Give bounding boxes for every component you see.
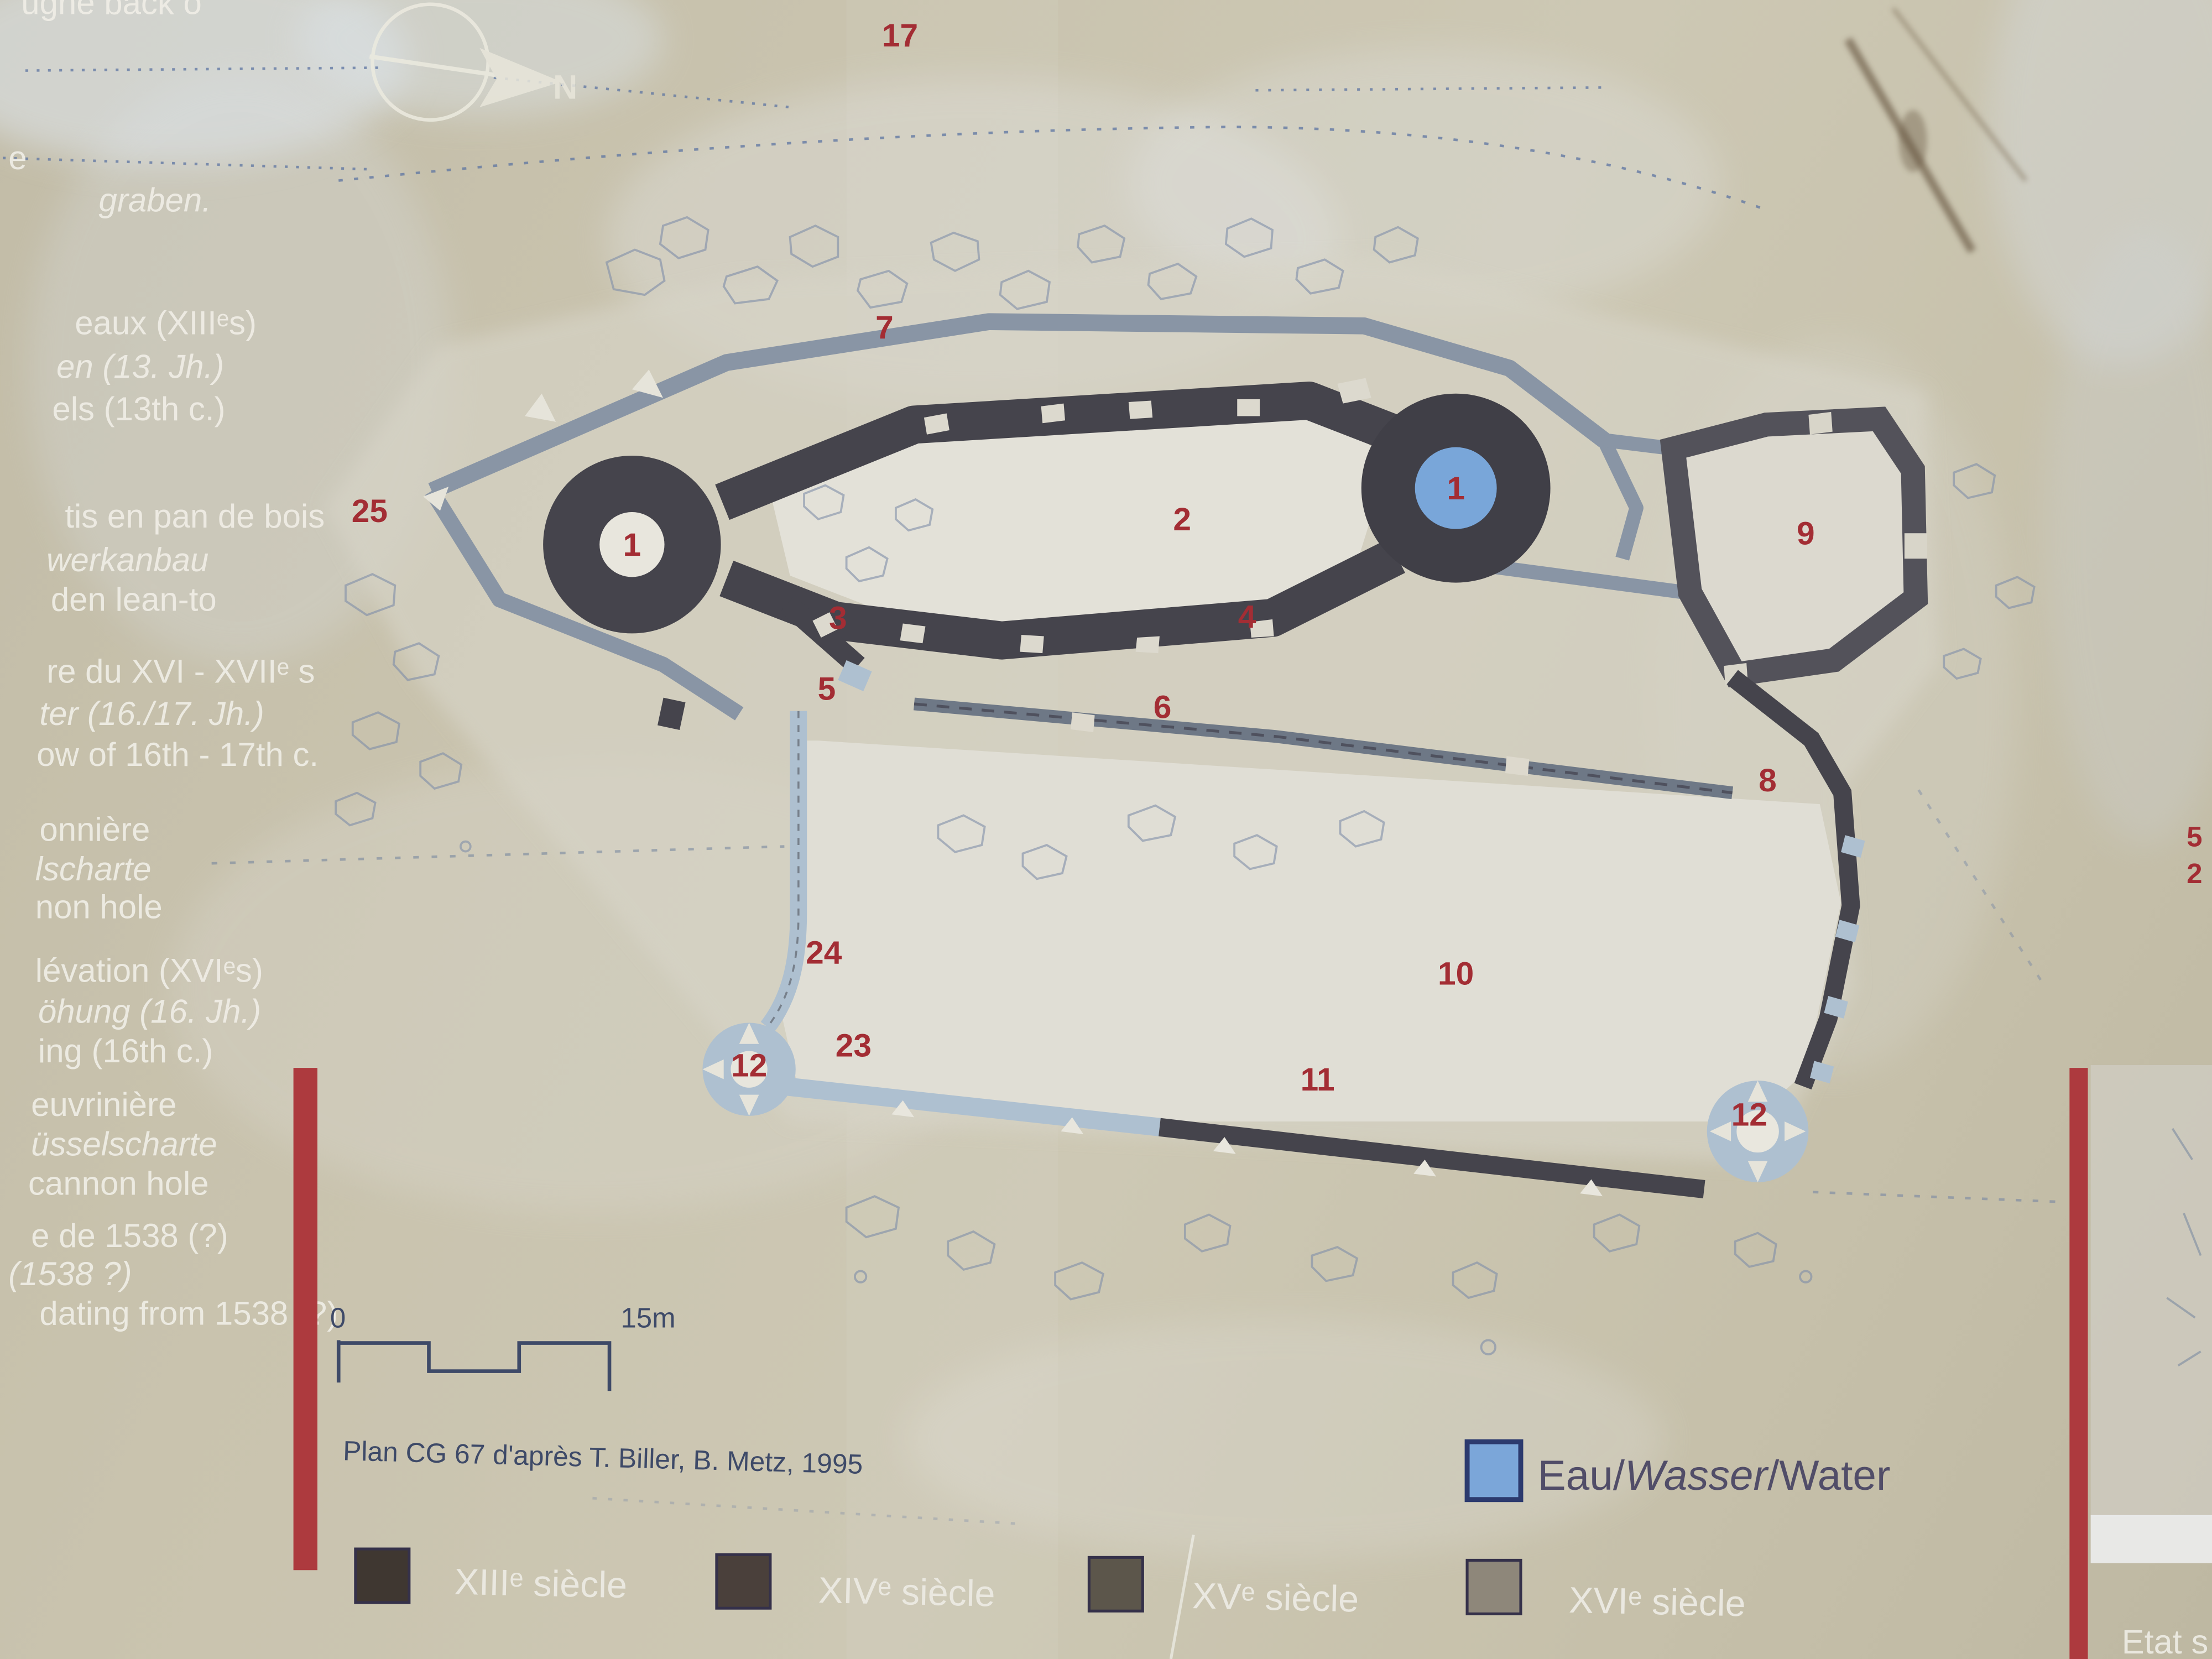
caption-line: e — [8, 139, 27, 176]
caption-line: eaux (XIIIᵉs) — [75, 305, 257, 342]
caption-line: werkanbau — [46, 541, 208, 578]
caption-line: euvrinière — [31, 1086, 176, 1123]
scale-end-label: 15m — [620, 1302, 675, 1334]
marker-23: 23 — [836, 1028, 872, 1064]
caption-line: ow of 16th - 17th c. — [36, 736, 319, 773]
adjacent-panel-number-1: 5 — [2187, 821, 2202, 853]
right-red-accent-bar — [2069, 1068, 2088, 1659]
left-red-accent-bar — [294, 1068, 317, 1570]
marker-6: 6 — [1154, 689, 1172, 725]
marker-11: 11 — [1301, 1062, 1335, 1098]
scale-bar-line — [338, 1340, 609, 1391]
caption-line: lscharte — [35, 851, 152, 888]
caption-line: den lean-to — [51, 581, 217, 618]
water-legend-swatch — [1467, 1442, 1521, 1500]
marker-1-keep: 1 — [623, 527, 641, 563]
marker-2: 2 — [1173, 502, 1191, 538]
marker-25: 25 — [352, 493, 388, 529]
scale-bar: 0 15m — [330, 1302, 676, 1391]
adjacent-panel-edge: 5 2 Etat s — [2091, 821, 2212, 1659]
marker-5: 5 — [818, 671, 836, 707]
marker-1-cistern: 1 — [1447, 471, 1465, 507]
caption-line: ing (16th c.) — [38, 1032, 213, 1070]
top-left-partial-text: ugne back o — [21, 0, 202, 22]
caption-line: öhung (16. Jh.) — [38, 993, 261, 1030]
legend-swatch-15c — [1089, 1557, 1142, 1611]
scale-start-label: 0 — [330, 1302, 346, 1334]
caption-line: non hole — [35, 889, 163, 926]
caption-line: onnière — [39, 811, 150, 848]
legend-swatch-14c — [717, 1554, 770, 1608]
marker-4: 4 — [1238, 599, 1256, 635]
marker-12-west: 12 — [731, 1047, 767, 1083]
caption-line: lévation (XVIᵉs) — [35, 952, 263, 989]
caption-line: e de 1538 (?) — [31, 1217, 228, 1254]
caption-line: re du XVI - XVIIᵉ s — [46, 653, 315, 690]
caption-line: üsselscharte — [31, 1125, 217, 1162]
caption-line: en (13. Jh.) — [56, 348, 224, 385]
caption-line: ter (16./17. Jh.) — [39, 695, 264, 732]
marker-7: 7 — [875, 310, 894, 346]
adjacent-panel-etat-text: Etat s — [2122, 1623, 2209, 1659]
adjacent-panel-number-2: 2 — [2187, 858, 2202, 889]
marker-12-east: 12 — [1731, 1097, 1767, 1133]
marker-24: 24 — [806, 935, 842, 971]
marker-9: 9 — [1797, 516, 1815, 552]
legend-swatch-16c — [1467, 1560, 1521, 1614]
water-legend-label: Eau/Wasser/Water — [1538, 1452, 1891, 1499]
marker-17: 17 — [882, 18, 918, 54]
caption-line: els (13th c.) — [52, 390, 225, 427]
legend-label-16c: XVIᵉ siècle — [1568, 1580, 1746, 1625]
legend-label-14c: XIVᵉ siècle — [818, 1570, 995, 1615]
caption-line: dating from 1538 (?) — [39, 1295, 338, 1332]
caption-line: graben. — [99, 182, 211, 219]
compass-n-label: N — [553, 69, 577, 106]
legend-label-15c: XVᵉ siècle — [1192, 1575, 1359, 1620]
caption-line: (1538 ?) — [8, 1255, 132, 1292]
marker-3: 3 — [829, 601, 847, 637]
legend-label-13c: XIIIᵉ siècle — [454, 1562, 628, 1606]
caption-line: tis en pan de bois — [65, 498, 325, 535]
caption-line: cannon hole — [28, 1165, 209, 1202]
legend-swatch-13c — [356, 1549, 409, 1603]
plan-attribution: Plan CG 67 d'après T. Biller, B. Metz, 1… — [343, 1435, 863, 1480]
castle-plan-panel-photo: N 17 7 25 1 2 1 9 3 4 5 6 8 24 10 23 12 … — [0, 0, 2212, 1659]
marker-8: 8 — [1759, 763, 1777, 799]
marker-10: 10 — [1438, 956, 1474, 992]
